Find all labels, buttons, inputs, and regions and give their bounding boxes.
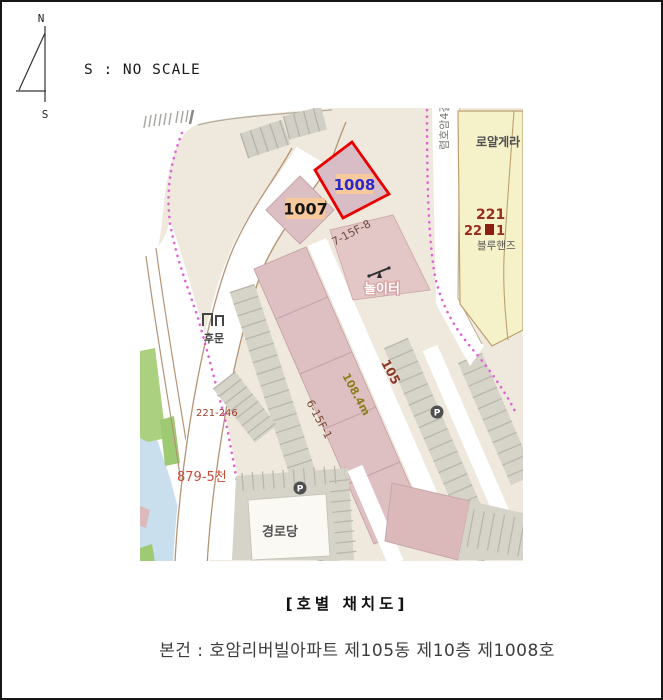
appraisal-map-page: N S S : NO SCALE [0, 0, 663, 700]
svg-text:P: P [434, 408, 441, 418]
compass-north-arrow: N S [12, 6, 82, 128]
svg-text:P: P [297, 484, 304, 494]
parking-icon-2: P [294, 482, 307, 495]
map-bottom-edge [140, 561, 523, 568]
parking-icon-1: P [431, 406, 444, 419]
top-parking-1 [244, 132, 286, 146]
compass-hypotenuse [19, 33, 45, 90]
subject-property-line: 본건 : 호암리버빌아파트 제105동 제10층 제1008호 [159, 636, 555, 661]
parcel-221-label: 221 [476, 207, 505, 223]
location-map: 놀이터 렴호암4길 로얄게라 221 22 1 블루핸즈 경로당 [140, 108, 523, 568]
playground-label: 놀이터 [364, 281, 400, 297]
map-caption-title: [호별 채치도] [286, 592, 409, 614]
red-marker-icon [485, 224, 494, 235]
unit-1008-label: 1008 [334, 176, 376, 194]
parcel-879-5-label: 879-5천 [177, 470, 227, 485]
senior-center-label: 경로당 [262, 524, 298, 540]
parcel-221-sub-prefix: 22 [464, 224, 482, 239]
back-gate-label: 후문 [204, 331, 224, 345]
bluehands-label: 블루핸즈 [477, 240, 516, 252]
unit-1007-label: 1007 [283, 200, 328, 219]
scale-note: S : NO SCALE [84, 62, 201, 78]
royal-building-label: 로얄게라 [476, 134, 520, 149]
parcel-221-sub-suffix: 1 [496, 224, 505, 239]
street-name-label: 렴호암4길 [438, 108, 451, 150]
compass-south-label: S [42, 108, 49, 121]
parcel-221-246-label: 221-246 [196, 408, 238, 419]
compass-north-label: N [38, 12, 45, 25]
